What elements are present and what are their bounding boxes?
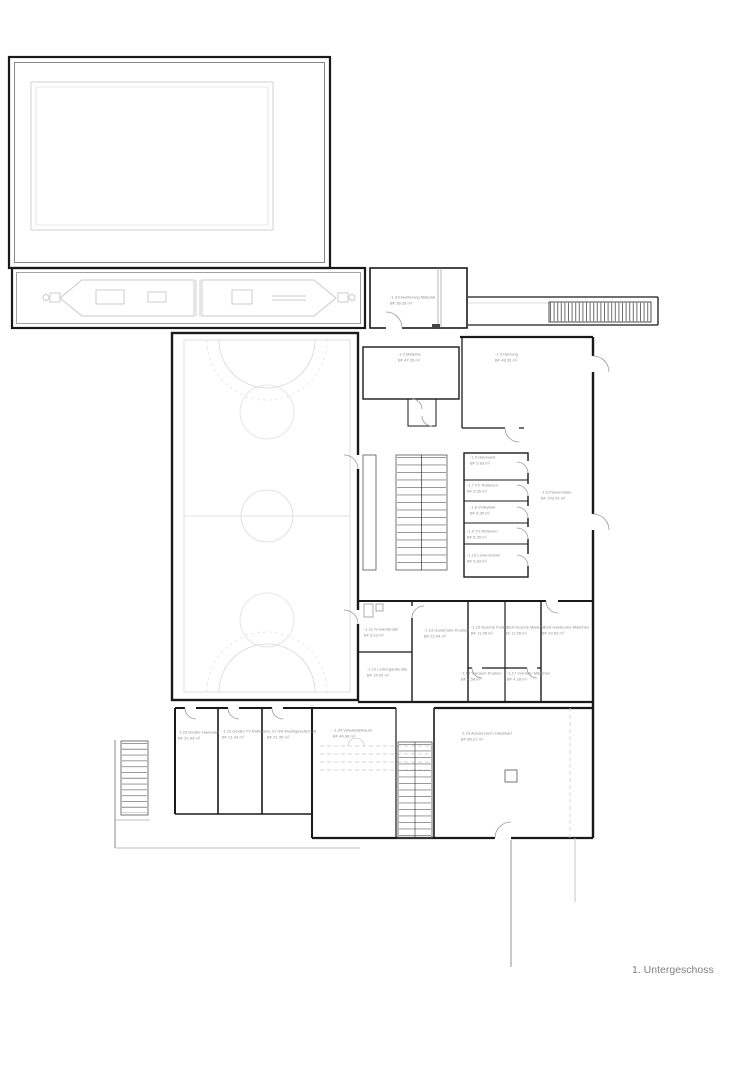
aussenraum-details — [505, 708, 570, 838]
room-label-material: -1.2 MaterialBF 47.26 m² — [398, 352, 421, 364]
technic-strip-building — [12, 268, 365, 328]
room-label-heizung: -1.4 HeizungBF 48.33 m² — [495, 352, 518, 364]
room-label-geraete-tv: -1.22 Geräte TV RüttenenBF 21.43 m² — [222, 729, 268, 741]
room-label-garderobe-knaben: -1.13 Garderobe KnabenBF 22.04 m² — [424, 628, 469, 640]
machinery-drawing — [43, 280, 355, 316]
room-label-hauswart: -1.6 HauswartBF 5.83 m² — [470, 455, 495, 467]
east-exterior-wall — [593, 337, 609, 702]
room-label-iv-garderobe: -1.11 IV-GarderobeBF 5.13 m² — [364, 627, 398, 639]
gym-court-markings — [184, 340, 350, 692]
room-label-lehrergarderobe: -1.12 LehrergarderobeBF 14.05 m² — [367, 667, 407, 679]
room-label-musikgesellschaft: -1.21 GR MusikgesellschaftBF 21.45 m² — [267, 729, 316, 741]
room-label-lehrerschaft: -1.10 LehrerschaftBF 5.83 m² — [467, 553, 500, 565]
site-lines — [115, 740, 575, 967]
pool-building — [9, 57, 330, 268]
plan-title: 1. Untergeschoss — [632, 964, 714, 976]
bike-stands — [320, 738, 430, 770]
room-label-fc: -1.7 FC RüttenenBF 5.26 m² — [467, 483, 498, 495]
room-label-dusche-maedchen: -1.16 Dusche MädchenBF 11.05 m² — [505, 625, 547, 637]
changing-rooms-band — [358, 601, 593, 702]
room-label-aussenraum: -1.19 Aussenraum HauswartBF 88.21 m² — [461, 731, 512, 743]
basement-stair — [398, 742, 432, 838]
floor-plan-linework — [0, 0, 753, 1074]
room-label-geraete-hauswart: -1.23 Geräte HauswartBF 21.44 m² — [178, 730, 219, 742]
room-label-erweiterung-material: -1.3 Erweiterung MaterialBF 36.28 m² — [390, 295, 435, 307]
shaft — [363, 455, 376, 570]
canopy-stair — [549, 302, 651, 322]
room-label-tv: -1.9 TV RüttenenBF 5.35 m² — [467, 529, 498, 541]
exterior-stair — [121, 741, 148, 815]
main-stair — [396, 455, 447, 570]
room-label-vorraum-knaben: -1.14 Vorraum KnabenBF 4.58 m² — [461, 671, 502, 683]
floor-plan-page: -1.2 MaterialBF 47.26 m² -1.3 Erweiterun… — [0, 0, 753, 1074]
room-label-veloabstellraum: -1.20 VeloabstellraumBF 44.36 m² — [333, 728, 372, 740]
pool-basin — [31, 82, 273, 230]
heating-room — [460, 337, 593, 442]
room-label-volleyball: -1.8 VolleyballBF 5.35 m² — [470, 505, 495, 517]
room-label-pausenhalle: -1.5 PausenhalleBF 143.41 m² — [541, 490, 571, 502]
room-label-vorraum-maedchen: -1.17 Vorraum MädchenBF 4.28 m² — [507, 671, 550, 683]
room-label-garderobe-maedchen: -1.18 Garderobe MädchenBF 20.53 m² — [542, 625, 589, 637]
